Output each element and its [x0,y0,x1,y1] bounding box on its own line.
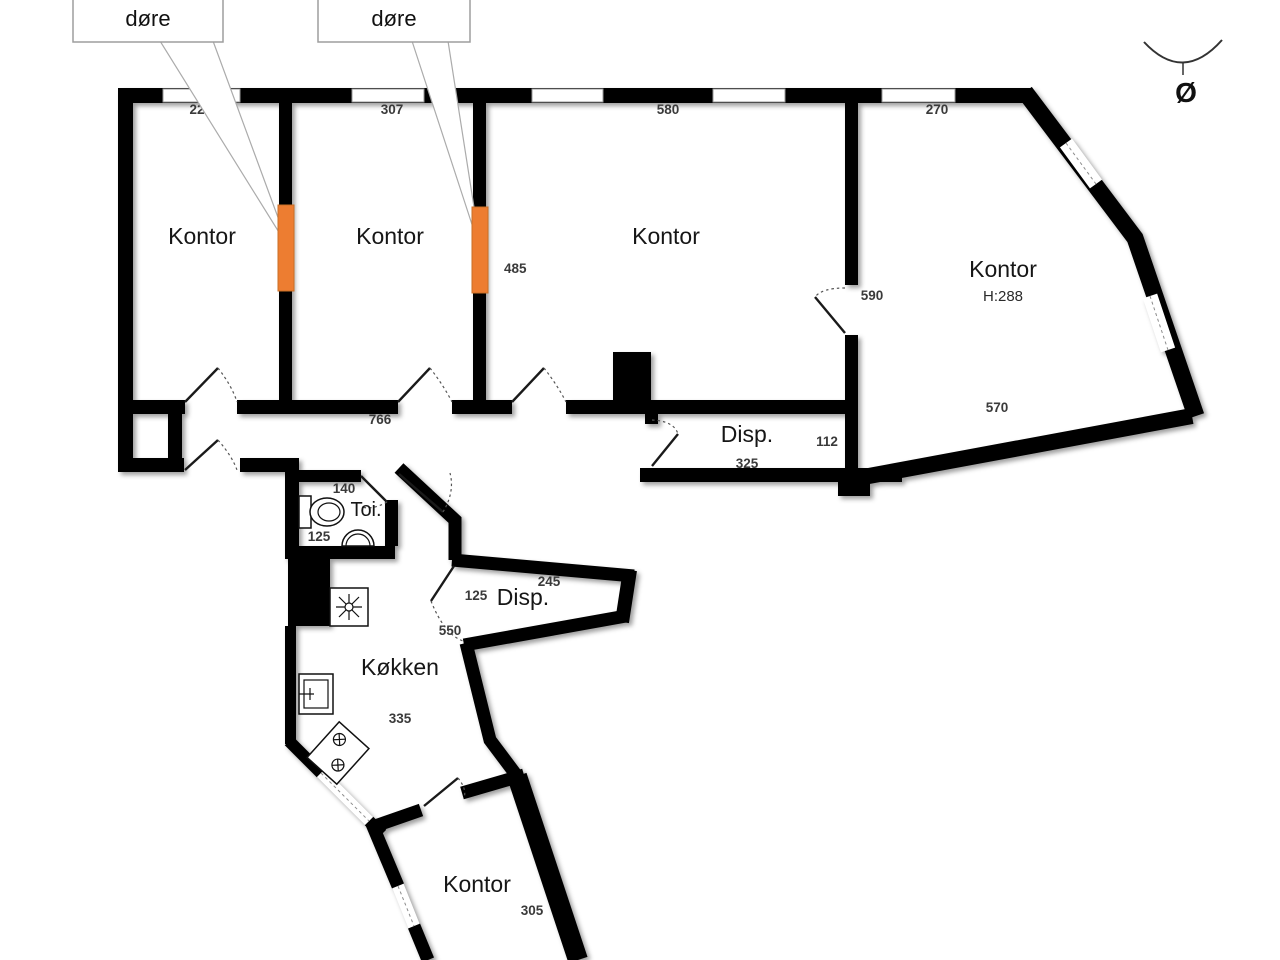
dim-toi-top: 140 [333,481,356,496]
dim-disp1-depth: 112 [816,434,838,449]
window-k4 [882,89,955,102]
floor-plan-canvas: 22 307 580 270 Kontor Kontor Kontor Kont… [0,0,1280,960]
callout-left: døre [73,0,223,42]
door-marker-2 [472,207,488,293]
hall-north-wall-d [566,400,858,414]
hall-south-wall-a [118,458,184,472]
dim-kontor4-top: 270 [926,102,949,117]
dim-kontor4-door: 590 [861,288,884,303]
ceiling-height-kontor4: H:288 [983,288,1023,305]
dim-kontor2-top: 307 [381,102,404,117]
partition-k3-k4-upper [845,103,858,285]
callout-right-label: døre [371,6,416,31]
floor-plan: 22 307 580 270 Kontor Kontor Kontor Kont… [0,0,1280,960]
compass-east-label: Ø [1175,77,1197,108]
room-label-kontor3: Kontor [632,223,700,249]
dim-door2-height: 485 [504,261,527,276]
dim-disp2-outside: 550 [439,623,462,638]
window-k2 [352,89,424,102]
room-label-kontor2: Kontor [356,223,424,249]
kitchen-shaft [288,558,330,626]
room-label-kontor4: Kontor [969,256,1037,282]
room-label-disp1: Disp. [721,421,773,447]
room-label-kontor5: Kontor [443,871,511,897]
dim-hallway: 766 [369,412,392,427]
dim-toi-bottom: 125 [308,529,331,544]
window-k3a [532,89,603,102]
fan-icon [336,594,362,620]
hall-north-wall-c [452,400,512,414]
room-label-kokken: Køkken [361,654,439,680]
room-label-toi: Toi. [350,499,381,521]
dim-disp1-length: 325 [736,456,759,471]
toilet-tank-icon [299,496,311,528]
dim-kontor4-width: 570 [986,400,1009,415]
toi-right-wall [385,500,398,546]
toi-left-wall [285,458,299,558]
window-k3b [713,89,785,102]
toilet-bowl-icon [310,498,344,526]
disp1-left-stub [645,414,658,424]
door-marker-1 [278,205,294,291]
dim-kontor5: 305 [521,903,544,918]
column [613,352,651,414]
kitchen-left-wall [285,626,296,744]
callout-right: døre [318,0,470,42]
left-wall [118,88,133,472]
dim-kokken: 335 [389,711,412,726]
dim-kontor3-top: 580 [657,102,680,117]
callout-left-label: døre [125,6,170,31]
dim-disp2-left: 125 [465,588,488,603]
toi-bottom-wall [285,546,395,559]
room-label-kontor1: Kontor [168,223,236,249]
room-label-disp2: Disp. [497,584,549,610]
